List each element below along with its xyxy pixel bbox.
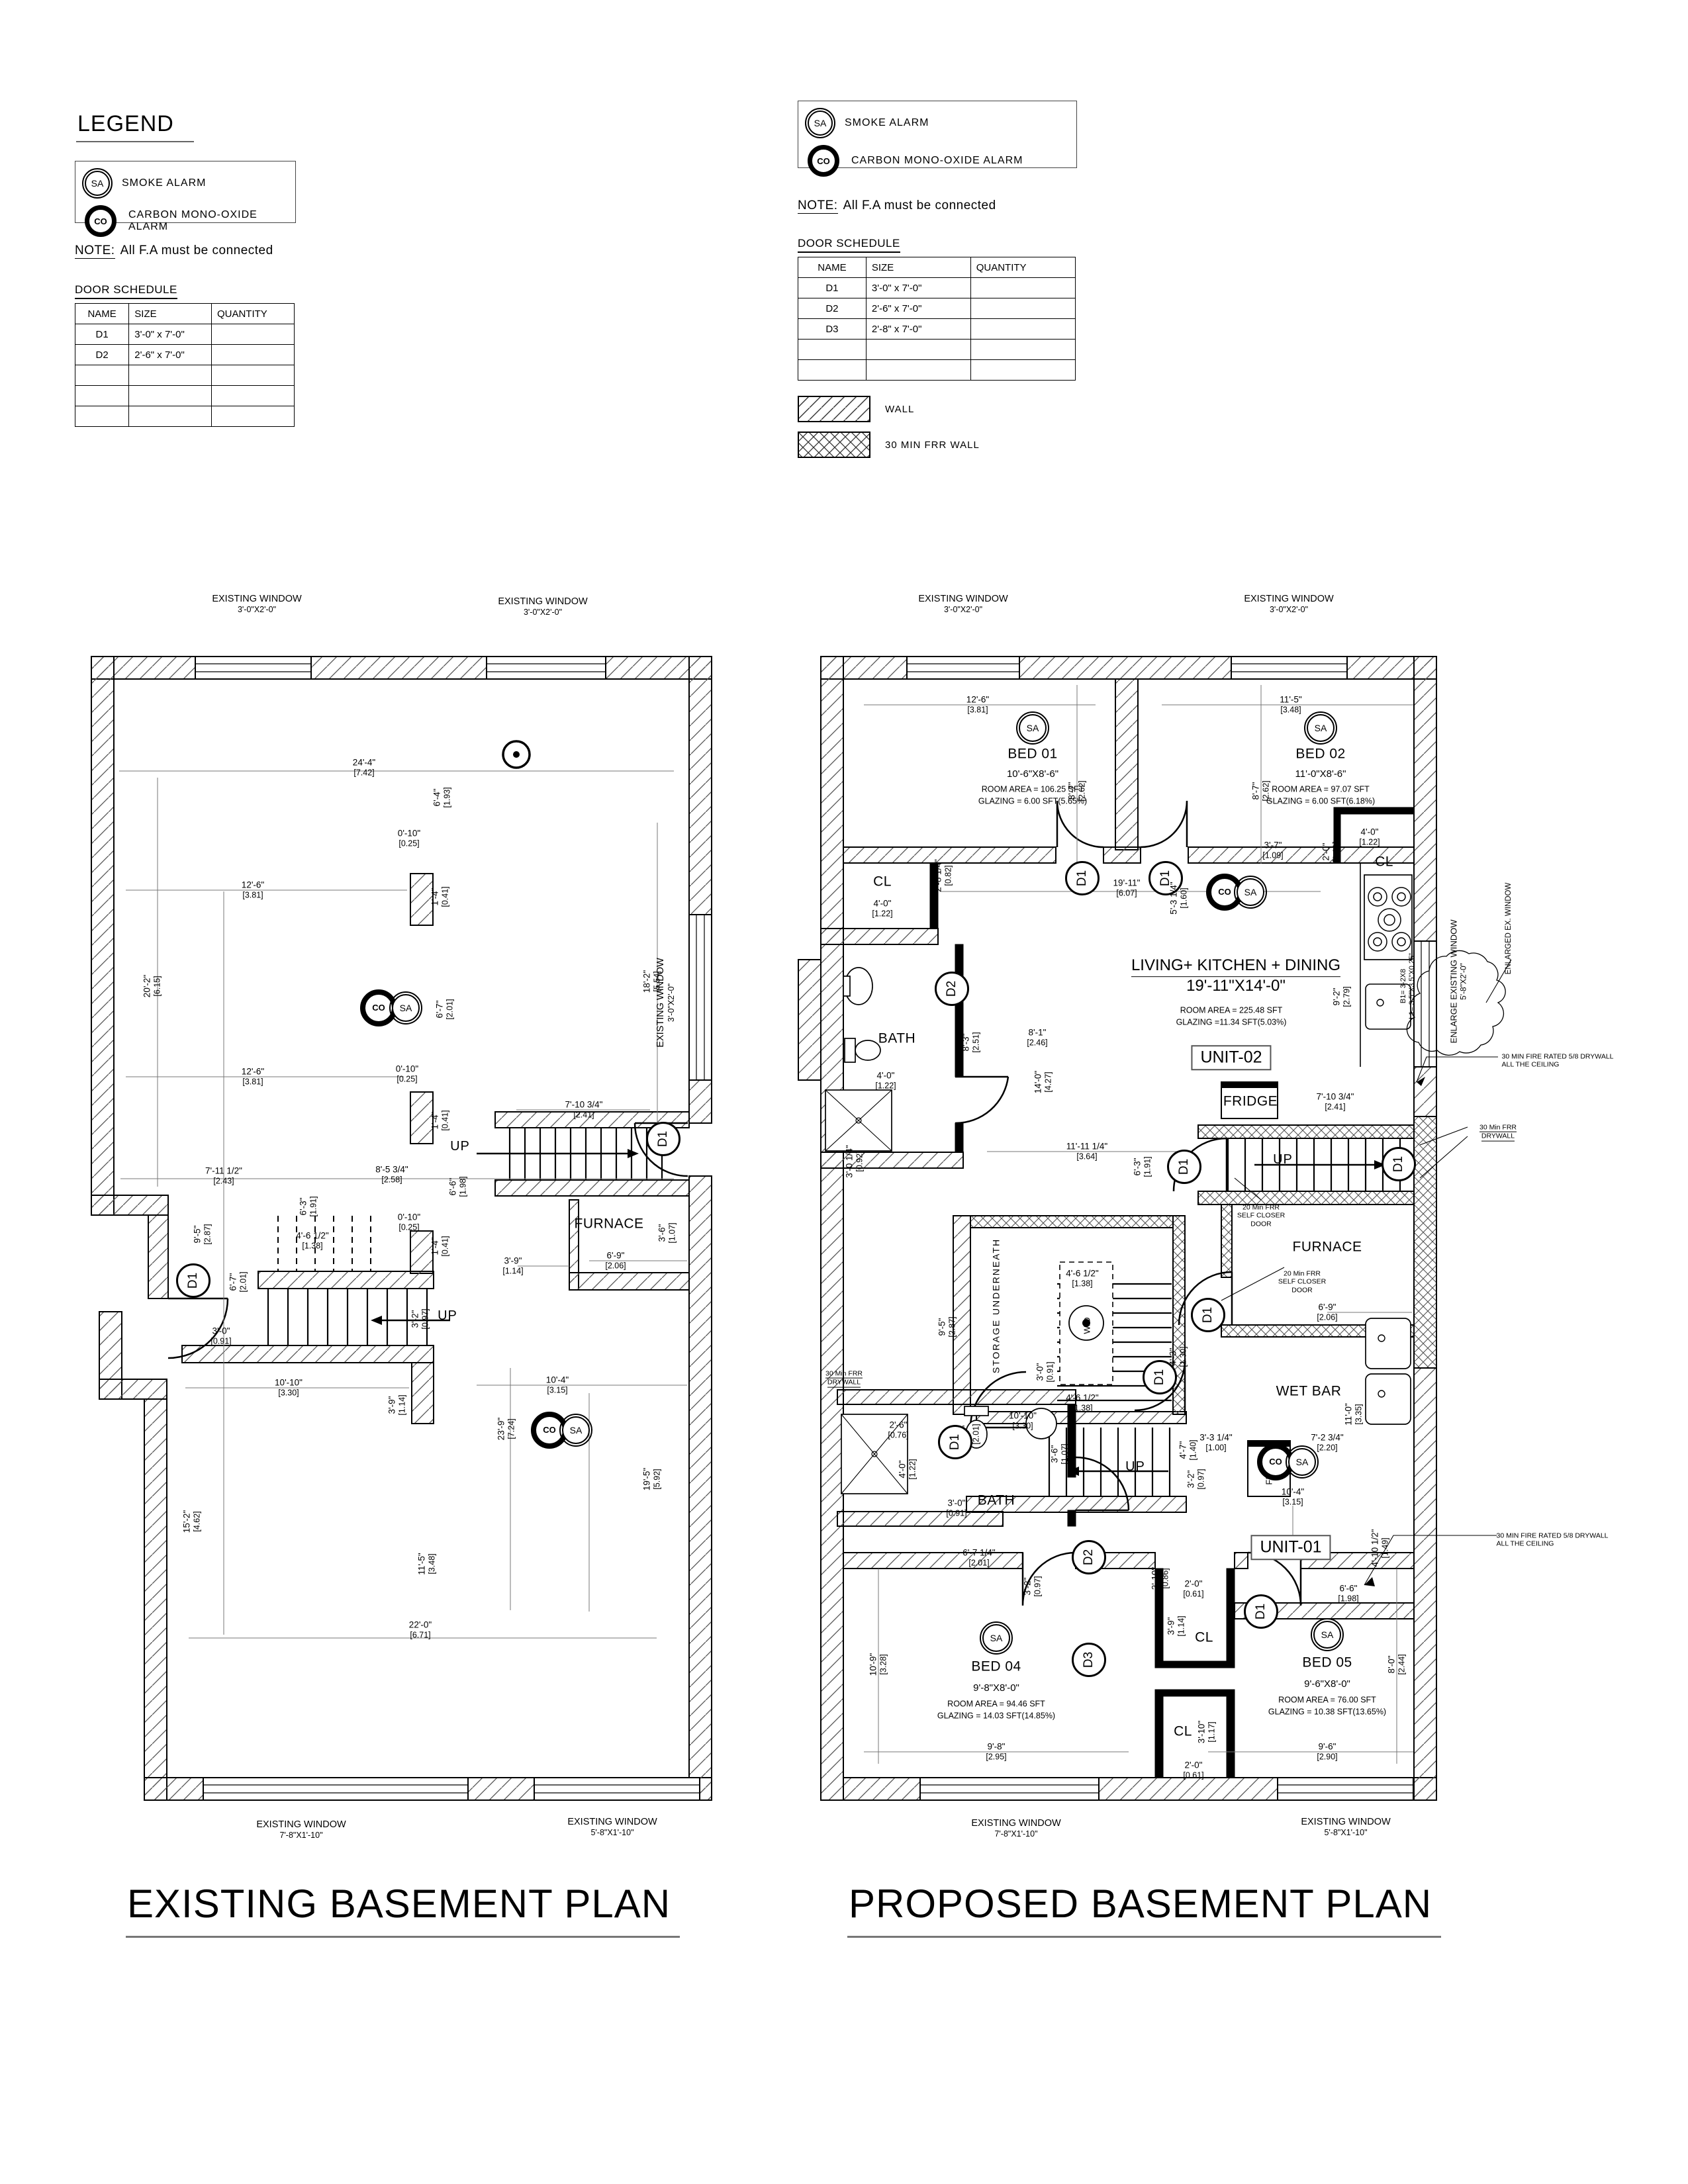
existing-plan-drawing bbox=[79, 579, 741, 1906]
dimension-label: 20'-2"[6.15] bbox=[142, 975, 163, 997]
dimension-label: 3'-6"[1.07] bbox=[1050, 1443, 1070, 1464]
window-label: EXISTING WINDOW5'-8"X1'-10" bbox=[567, 1817, 657, 1838]
dimension-label: 6'-7"[2.01] bbox=[435, 999, 455, 1019]
dimension-label: 8'-7"[2.62] bbox=[1067, 780, 1088, 801]
appliance-label-fridge: FRIDGE bbox=[1223, 1094, 1278, 1111]
drawing-sheet: LEGEND SA SMOKE ALARM CO CARBON MONO-OXI… bbox=[0, 0, 1688, 2184]
dimension-label: 3'-9"[1.14] bbox=[1166, 1615, 1187, 1636]
dimension-label: GLAZING =11.34 SFT(5.03%) bbox=[1176, 1018, 1287, 1028]
fire-rated-ceiling-note: 30 MIN FIRE RATED 5/8 DRYWALLALL THE CEI… bbox=[1501, 1053, 1613, 1069]
beam-lintel-note: B1= 3-2X8L1= 3.5"X3.5"X0.25" bbox=[1399, 953, 1417, 1019]
schedule-cell bbox=[75, 406, 129, 427]
schedule-row bbox=[75, 406, 295, 427]
dimension-label: 6'-3"[1.91] bbox=[299, 1196, 319, 1216]
dimension-label: 0'-10"[0.25] bbox=[398, 829, 420, 849]
co-alarm-icon: CO bbox=[808, 145, 839, 177]
schedule-row bbox=[798, 360, 1076, 381]
dimension-label: 6'-3"[1.91] bbox=[1133, 1156, 1153, 1177]
dimension-label: 4'-0"[1.22] bbox=[898, 1459, 918, 1479]
dimension-label: 7'-2 3/4"[2.20] bbox=[1311, 1433, 1343, 1453]
schedule-cell bbox=[75, 386, 129, 406]
fire-rated-ceiling-note: 30 MIN FIRE RATED 5/8 DRYWALLALL THE CEI… bbox=[1496, 1532, 1608, 1549]
room-label-cl: CL bbox=[873, 874, 892, 891]
schedule-header: SIZE bbox=[866, 257, 970, 278]
dimension-label: 22'-0"[6.71] bbox=[409, 1620, 432, 1641]
enlarge-window-note: ENLARGE EXISTING WINDOW5'-8"X2'-0" bbox=[1448, 919, 1468, 1043]
smoke-alarm-symbol: SA bbox=[1288, 1448, 1316, 1476]
door-tag-d3: D3 bbox=[1072, 1643, 1106, 1677]
schedule-cell: D3 bbox=[798, 319, 867, 340]
enlarged-ex-window-note: ENLARGED EX. WINDOW bbox=[1505, 883, 1514, 975]
schedule-cell bbox=[211, 386, 294, 406]
dimension-label: 4'-7"[1.40] bbox=[1178, 1439, 1199, 1460]
dimension-label: 3'-7"[1.09] bbox=[1262, 841, 1283, 861]
dimension-label: 19'-11"[6.07] bbox=[1113, 878, 1141, 899]
dimension-label: ROOM AREA = 94.46 SFT bbox=[947, 1700, 1045, 1709]
co-alarm-icon: CO bbox=[85, 205, 117, 237]
schedule-header: NAME bbox=[798, 257, 867, 278]
dimension-label: 24'-4"[7.42] bbox=[353, 758, 375, 778]
dimension-label: ROOM AREA = 225.48 SFT bbox=[1180, 1006, 1283, 1016]
legend-symbol-box: SA SMOKE ALARM CO CARBON MONO-OXIDE ALAR… bbox=[798, 101, 1077, 168]
unit-02-label: UNIT-02 bbox=[1191, 1045, 1271, 1070]
dimension-label: 3'-2"[0.97] bbox=[410, 1308, 431, 1329]
dimension-label: ROOM AREA = 76.00 SFT bbox=[1278, 1696, 1376, 1706]
smoke-alarm-symbol: SA bbox=[1307, 714, 1335, 742]
smoke-alarm-symbol: SA bbox=[1237, 878, 1264, 906]
dimension-label: 4'-6 1/2"[1.38] bbox=[1066, 1269, 1098, 1289]
dimension-label: 4'-10 1/2"[1.49] bbox=[1370, 1529, 1391, 1567]
smoke-alarm-symbol: SA bbox=[1313, 1621, 1341, 1649]
dimension-label: 6'-9"[2.06] bbox=[1317, 1302, 1337, 1323]
schedule-cell bbox=[866, 340, 970, 360]
dimension-label: 3'-0"[0.91] bbox=[211, 1326, 231, 1347]
window-label: EXISTING WINDOW7'-8"X1'-10" bbox=[256, 1819, 346, 1841]
dimension-label: 8'-0"[2.44] bbox=[1387, 1654, 1407, 1674]
dimension-label: 8'-5 3/4"[2.58] bbox=[375, 1165, 408, 1185]
door-tag-d1: D1 bbox=[176, 1263, 211, 1298]
dimension-label: 9'-5"[2.87] bbox=[937, 1316, 958, 1337]
proposed-plan-drawing bbox=[798, 579, 1688, 1906]
proposed-basement-plan: EXISTING WINDOW3'-0"X2'-0"EXISTING WINDO… bbox=[798, 579, 1688, 1906]
window-label: EXISTING WINDOW3'-0"X2'-0" bbox=[212, 594, 301, 615]
washer-dryer-label: W/D bbox=[1082, 1317, 1092, 1334]
schedule-cell bbox=[866, 360, 970, 381]
dimension-label: 11'-5"[3.48] bbox=[1280, 695, 1301, 715]
schedule-cell bbox=[211, 365, 294, 386]
room-label-bath: BATH bbox=[878, 1031, 915, 1048]
schedule-cell bbox=[970, 298, 1075, 319]
dimension-label: 3'-9"[1.14] bbox=[502, 1256, 523, 1277]
legend-row-co-alarm: CO CARBON MONO-OXIDE ALARM bbox=[808, 145, 1076, 177]
door-schedule-table: NAMESIZEQUANTITYD13'-0" x 7'-0"D22'-6" x… bbox=[75, 303, 295, 427]
frr-drywall-note: 30 Min FRRDRYWALL bbox=[1479, 1124, 1517, 1142]
window-label: EXISTING WINDOW3'-0"X2'-0" bbox=[498, 596, 587, 617]
door-schedule-title: DOOR SCHEDULE bbox=[798, 237, 900, 253]
room-label-bed-04: BED 04 bbox=[971, 1659, 1021, 1676]
proposed-plan-title: PROPOSED BASEMENT PLAN bbox=[847, 1881, 1441, 1938]
room-label-furnace: FURNACE bbox=[574, 1216, 643, 1233]
legend-title: LEGEND bbox=[76, 111, 194, 142]
schedule-header: NAME bbox=[75, 304, 129, 324]
schedule-cell bbox=[75, 365, 129, 386]
door-tag-d1: D1 bbox=[938, 1425, 972, 1459]
frr-door-note: 20 Min FRRSELF CLOSERDOOR bbox=[1237, 1203, 1285, 1228]
window-label: EXISTING WINDOW3'-0"X2'-0" bbox=[1244, 594, 1333, 615]
room-label-cl: CL bbox=[1174, 1724, 1192, 1741]
door-tag-d2: D2 bbox=[935, 972, 969, 1006]
room-label-living: LIVING+ KITCHEN + DINING19'-11"X14'-0" bbox=[1131, 956, 1340, 996]
dimension-label: 7'-10 3/4"[2.41] bbox=[565, 1100, 603, 1120]
schedule-row: D13'-0" x 7'-0" bbox=[798, 278, 1076, 298]
up-label: UP bbox=[1273, 1152, 1293, 1168]
dimension-label: 15'-2"[4.62] bbox=[182, 1510, 203, 1533]
dimension-label: 7'-10 3/4"[2.41] bbox=[1317, 1092, 1354, 1113]
legend-row-smoke-alarm: SA SMOKE ALARM bbox=[808, 111, 1076, 136]
dimension-label: 12'-6"[3.81] bbox=[966, 695, 989, 715]
dimension-label: 11'-0"X8'-6" bbox=[1295, 768, 1346, 780]
dimension-label: 1'-4"[0.41] bbox=[430, 886, 451, 907]
window-label: EXISTING WINDOW7'-8"X1'-10" bbox=[971, 1818, 1060, 1839]
dimension-label: 2'-0"[0.61] bbox=[1321, 841, 1342, 862]
window-label: EXISTING WINDOW3'-0"X2'-0" bbox=[918, 594, 1008, 615]
storage-label: STORAGE UNDERNEATH bbox=[991, 1238, 1002, 1373]
schedule-cell: 2'-8" x 7'-0" bbox=[866, 319, 970, 340]
dimension-label: GLAZING = 10.38 SFT(13.65%) bbox=[1268, 1707, 1386, 1717]
dimension-label: 5'-3 1/4"[1.60] bbox=[1169, 882, 1190, 914]
dimension-label: 11'-11 1/4"[3.64] bbox=[1066, 1142, 1107, 1162]
schedule-cell: D1 bbox=[798, 278, 867, 298]
dimension-label: 12'-6"[3.81] bbox=[242, 880, 264, 901]
schedule-cell: D2 bbox=[75, 345, 129, 365]
frr-door-note: 20 Min FRRSELF CLOSERDOOR bbox=[1278, 1269, 1326, 1294]
dimension-label: 1'-4"[0.41] bbox=[430, 1236, 451, 1256]
schedule-row bbox=[75, 365, 295, 386]
schedule-cell: 2'-6" x 7'-0" bbox=[129, 345, 212, 365]
dimension-label: 2'-10"[0.86] bbox=[1150, 1567, 1171, 1590]
dimension-label: 2'-0"[0.61] bbox=[1183, 1760, 1203, 1781]
schedule-cell bbox=[211, 345, 294, 365]
door-schedule-title: DOOR SCHEDULE bbox=[75, 283, 177, 299]
dimension-label: 9'-6"[2.90] bbox=[1317, 1742, 1337, 1762]
dimension-label: 14'-0"[4.27] bbox=[1033, 1071, 1054, 1093]
schedule-row: D32'-8" x 7'-0" bbox=[798, 319, 1076, 340]
dimension-label: 10'-6"X8'-6" bbox=[1007, 768, 1058, 780]
room-label-cl: CL bbox=[1375, 854, 1393, 871]
schedule-cell bbox=[211, 406, 294, 427]
dimension-label: 4'-0"[1.22] bbox=[1359, 827, 1380, 848]
dimension-label: 11'-0"[3.35] bbox=[1344, 1403, 1364, 1425]
dimension-label: 3'-0"[0.91] bbox=[946, 1498, 966, 1519]
door-tag-d1: D1 bbox=[1065, 861, 1100, 895]
smoke-alarm-icon: SA bbox=[85, 171, 110, 196]
dimension-label: 1'-4"[0.41] bbox=[430, 1110, 451, 1130]
smoke-alarm-symbol: SA bbox=[562, 1416, 590, 1444]
schedule-row: D22'-6" x 7'-0" bbox=[798, 298, 1076, 319]
dimension-label: 8'-3"[2.51] bbox=[961, 1032, 982, 1052]
door-tag-d1: D1 bbox=[1382, 1147, 1416, 1181]
frr-wall-swatch bbox=[798, 432, 870, 458]
dimension-label: 6'-6"[1.98] bbox=[1338, 1584, 1358, 1604]
dimension-label: 4'-0"[1.22] bbox=[872, 899, 892, 919]
room-label-furnace: FURNACE bbox=[1292, 1240, 1362, 1256]
dimension-label: 3'-2"[0.97] bbox=[1023, 1576, 1043, 1596]
dimension-label: 4'-6 1/2"[1.38] bbox=[1066, 1393, 1098, 1414]
dimension-label: 7'-11 1/2"[2.43] bbox=[205, 1166, 242, 1187]
dimension-label: 4'-0"[1.22] bbox=[875, 1071, 896, 1091]
dimension-label: 3'-2"[0.97] bbox=[1186, 1469, 1207, 1489]
frr-wall-legend-row: 30 MIN FRR WALL bbox=[798, 432, 980, 458]
dimension-label: 0'-10"[0.25] bbox=[396, 1064, 418, 1085]
schedule-cell bbox=[129, 386, 212, 406]
existing-basement-plan: EXISTING WINDOW3'-0"X2'-0"EXISTING WINDO… bbox=[79, 579, 741, 1906]
dimension-label: 8'-1"[2.46] bbox=[1027, 1028, 1047, 1048]
dimension-label: 19'-5"[5.92] bbox=[642, 1468, 663, 1490]
dimension-label: 3'-9"[1.14] bbox=[387, 1394, 408, 1415]
schedule-cell bbox=[970, 278, 1075, 298]
schedule-cell: 3'-0" x 7'-0" bbox=[866, 278, 970, 298]
dimension-label: 6'-7"[2.01] bbox=[228, 1271, 249, 1292]
schedule-cell: D2 bbox=[798, 298, 867, 319]
schedule-header: SIZE bbox=[129, 304, 212, 324]
smoke-alarm-icon: SA bbox=[808, 111, 833, 136]
schedule-cell bbox=[798, 340, 867, 360]
smoke-alarm-symbol: SA bbox=[392, 994, 420, 1022]
door-tag-d2: D2 bbox=[1072, 1540, 1106, 1574]
schedule-cell bbox=[211, 324, 294, 345]
up-label: UP bbox=[450, 1139, 470, 1155]
door-tag-d1: D1 bbox=[1191, 1298, 1225, 1332]
schedule-row: D13'-0" x 7'-0" bbox=[75, 324, 295, 345]
dimension-label: 10'-4"[3.15] bbox=[546, 1375, 569, 1396]
dimension-label: GLAZING = 6.00 SFT(6.18%) bbox=[1266, 797, 1375, 807]
schedule-cell bbox=[129, 406, 212, 427]
unit-01-label: UNIT-01 bbox=[1250, 1535, 1331, 1560]
smoke-alarm-symbol: SA bbox=[1019, 714, 1047, 742]
dimension-label: 3'-10"[1.17] bbox=[1197, 1721, 1217, 1743]
schedule-cell bbox=[129, 365, 212, 386]
frr-drywall-note: 30 Min FRRDRYWALL bbox=[825, 1370, 863, 1388]
dimension-label: 12'-6"[3.81] bbox=[242, 1067, 264, 1087]
schedule-cell: D1 bbox=[75, 324, 129, 345]
schedule-cell bbox=[970, 340, 1075, 360]
legend-symbol-box: SA SMOKE ALARM CO CARBON MONO-OXIDE ALAR… bbox=[75, 161, 296, 223]
room-label-bed-05: BED 05 bbox=[1302, 1655, 1352, 1672]
dimension-label: 10'-10"[3.30] bbox=[275, 1378, 303, 1398]
schedule-cell bbox=[970, 319, 1075, 340]
legend-row-co-alarm: CO CARBON MONO-OXIDE ALARM bbox=[85, 205, 295, 237]
dimension-label: 2'-0"[0.61] bbox=[1183, 1579, 1203, 1600]
dimension-label: 18'-2"[5.54] bbox=[642, 970, 663, 993]
door-tag-d1: D1 bbox=[1244, 1594, 1278, 1629]
dimension-label: 6'-9"[2.06] bbox=[605, 1251, 626, 1271]
dimension-label: ROOM AREA = 97.07 SFT bbox=[1272, 785, 1370, 795]
schedule-cell: 2'-6" x 7'-0" bbox=[866, 298, 970, 319]
door-tag-d1: D1 bbox=[1167, 1150, 1201, 1184]
existing-plan-title: EXISTING BASEMENT PLAN bbox=[126, 1881, 680, 1938]
dimension-label: 10'-9"[3.28] bbox=[868, 1653, 889, 1676]
schedule-header: QUANTITY bbox=[970, 257, 1075, 278]
dimension-label: GLAZING = 14.03 SFT(14.85%) bbox=[937, 1711, 1055, 1721]
note-line: NOTE:All F.A must be connected bbox=[798, 199, 996, 213]
dimension-label: 2'-8 1/4"[0.82] bbox=[933, 859, 954, 891]
dimension-label: 4'-6 1/2"[1.38] bbox=[296, 1231, 328, 1251]
up-label: UP bbox=[438, 1308, 457, 1324]
legend-row-smoke-alarm: SA SMOKE ALARM bbox=[85, 171, 295, 196]
schedule-cell: 3'-0" x 7'-0" bbox=[129, 324, 212, 345]
dimension-label: 3'-6"[1.07] bbox=[657, 1222, 678, 1243]
room-label-cl: CL bbox=[1195, 1630, 1213, 1647]
dimension-label: 9'-6"X8'-0" bbox=[1304, 1678, 1350, 1690]
wall-legend-row: WALL bbox=[798, 396, 914, 422]
dimension-label: 9'-5"[2.87] bbox=[193, 1224, 213, 1244]
dimension-label: 2'-6"[0.76] bbox=[888, 1420, 908, 1441]
room-label-wet-bar: WET BAR bbox=[1276, 1384, 1342, 1400]
note-line: NOTE:All F.A must be connected bbox=[75, 244, 273, 258]
dimension-label: 0'-10"[0.25] bbox=[398, 1212, 420, 1233]
dimension-label: 23'-9"[7.24] bbox=[496, 1418, 517, 1440]
schedule-header: QUANTITY bbox=[211, 304, 294, 324]
schedule-row: D22'-6" x 7'-0" bbox=[75, 345, 295, 365]
dimension-label: 10'-4"[3.15] bbox=[1282, 1487, 1304, 1508]
dimension-label: 4'-3"[1.30] bbox=[1168, 1346, 1189, 1367]
schedule-cell bbox=[970, 360, 1075, 381]
door-schedule-table: NAMESIZEQUANTITYD13'-0" x 7'-0"D22'-6" x… bbox=[798, 257, 1076, 381]
door-tag-d1: D1 bbox=[646, 1122, 680, 1156]
schedule-row bbox=[798, 340, 1076, 360]
dimension-label: 3'-0"[0.91] bbox=[1035, 1361, 1056, 1382]
smoke-alarm-symbol: SA bbox=[982, 1624, 1010, 1652]
dimension-label: 10'-10"[3.30] bbox=[1009, 1411, 1037, 1432]
room-label-bath: BATH bbox=[978, 1493, 1015, 1510]
room-label-bed-02: BED 02 bbox=[1295, 747, 1345, 763]
room-label-bed-01: BED 01 bbox=[1008, 747, 1057, 763]
schedule-cell bbox=[798, 360, 867, 381]
schedule-row bbox=[75, 386, 295, 406]
dimension-label: 3'-3 1/4"[1.00] bbox=[1199, 1433, 1232, 1453]
dimension-label: 9'-8"X8'-0" bbox=[973, 1682, 1019, 1694]
dimension-label: 9'-8"[2.95] bbox=[986, 1742, 1006, 1762]
dimension-label: 3'-0 1/4"[0.92] bbox=[845, 1145, 865, 1177]
window-label: EXISTING WINDOW5'-8"X1'-10" bbox=[1301, 1817, 1390, 1838]
dimension-label: 6'-4"[1.93] bbox=[432, 787, 453, 807]
dimension-label: 9'-2"[2.79] bbox=[1332, 986, 1352, 1007]
dimension-label: 6'-7 1/4"[2.01] bbox=[962, 1548, 995, 1569]
wall-swatch bbox=[798, 396, 870, 422]
dimension-label: 11'-5"[3.48] bbox=[417, 1553, 438, 1574]
up-label: UP bbox=[1125, 1459, 1145, 1475]
dimension-label: 6'-6"[1.98] bbox=[448, 1176, 469, 1197]
